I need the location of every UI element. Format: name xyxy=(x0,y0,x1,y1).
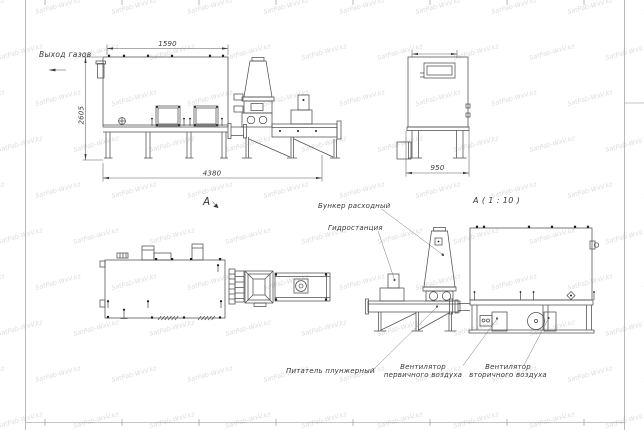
dimensions xyxy=(49,45,470,209)
watermark-text: SatPab-WxV.kz xyxy=(224,42,272,62)
watermark-text: SatPab-WxV.kz xyxy=(566,88,614,108)
watermark-text: SatPab-WxV.kz xyxy=(566,180,614,200)
watermark-text: SatPab-WxV.kz xyxy=(376,226,424,246)
watermark-text: SatPab-WxV.kz xyxy=(452,410,500,430)
watermark-text: SatPab-WxV.kz xyxy=(0,0,6,16)
hopper-tower-detail xyxy=(423,228,456,302)
watermark-text: SatPab-WxV.kz xyxy=(528,42,576,62)
watermark-text: SatPab-WxV.kz xyxy=(0,272,6,292)
watermark-text: SatPab-WxV.kz xyxy=(414,88,462,108)
callout-hydraulic: Гидростанция xyxy=(328,224,383,232)
watermark-text: SatPab-WxV.kz xyxy=(0,364,6,384)
watermark-text: SatPab-WxV.kz xyxy=(224,226,272,246)
watermark-text: SatPab-WxV.kz xyxy=(0,88,6,108)
plunger-feeder-side xyxy=(242,113,341,139)
watermark-layer: SatPab-WxV.kzSatPab-WxV.kzSatPab-WxV.kzS… xyxy=(0,0,644,430)
watermark-text: SatPab-WxV.kz xyxy=(528,134,576,154)
dim-4380-text: 4380 xyxy=(203,170,222,178)
watermark-text: SatPab-WxV.kz xyxy=(0,318,44,338)
watermark-text: SatPab-WxV.kz xyxy=(34,364,82,384)
top-opening xyxy=(420,63,455,78)
watermark-text: SatPab-WxV.kz xyxy=(338,88,386,108)
gas-outlet-arrow xyxy=(49,69,67,72)
watermark-text: SatPab-WxV.kz xyxy=(452,134,500,154)
drawing-sheet: SatPab-WxV.kzSatPab-WxV.kzSatPab-WxV.kzS… xyxy=(0,0,644,430)
watermark-text: SatPab-WxV.kz xyxy=(0,42,44,62)
watermark-text: SatPab-WxV.kz xyxy=(490,272,538,292)
watermark-text: SatPab-WxV.kz xyxy=(110,88,158,108)
technical-drawing: SatPab-WxV.kzSatPab-WxV.kzSatPab-WxV.kzS… xyxy=(0,0,644,430)
foundation-bolts xyxy=(475,292,595,301)
watermark-text: SatPab-WxV.kz xyxy=(110,272,158,292)
plan-chimney-stubs xyxy=(117,244,203,260)
watermark-text: SatPab-WxV.kz xyxy=(0,134,44,154)
watermark-text: SatPab-WxV.kz xyxy=(528,318,576,338)
watermark-text: SatPab-WxV.kz xyxy=(0,410,44,430)
gas-outlet-label: Выход газов xyxy=(39,50,92,59)
watermark-text: SatPab-WxV.kz xyxy=(72,134,120,154)
watermark-text: SatPab-WxV.kz xyxy=(566,364,614,384)
watermark-text: SatPab-WxV.kz xyxy=(414,0,462,16)
plan-flange-bellows xyxy=(229,269,244,304)
callout-primary-fan-line1: Вентилятор xyxy=(400,363,446,371)
view-a-arrow xyxy=(213,202,219,209)
watermark-text: SatPab-WxV.kz xyxy=(0,226,44,246)
furnace-body xyxy=(103,57,228,127)
sheet-frame xyxy=(26,0,644,430)
watermark-text: SatPab-WxV.kz xyxy=(376,410,424,430)
watermark-text: SatPab-WxV.kz xyxy=(224,410,272,430)
watermark-text: SatPab-WxV.kz xyxy=(262,88,310,108)
lifting-lug xyxy=(590,241,599,249)
detail-view xyxy=(366,228,599,334)
view-a-label: А xyxy=(202,196,210,208)
watermark-text: SatPab-WxV.kz xyxy=(148,226,196,246)
watermark-text: SatPab-WxV.kz xyxy=(34,0,82,16)
dim-1590-text: 1590 xyxy=(158,40,177,48)
callout-feeder: Питатель плунжерный xyxy=(286,367,375,375)
watermark-text: SatPab-WxV.kz xyxy=(376,42,424,62)
leader-feeder xyxy=(373,305,438,370)
watermark-text: SatPab-WxV.kz xyxy=(566,272,614,292)
watermark-text: SatPab-WxV.kz xyxy=(186,364,234,384)
watermark-text: SatPab-WxV.kz xyxy=(72,410,120,430)
callout-secondary-fan-line1: Вентилятор xyxy=(485,363,531,371)
watermark-text: SatPab-WxV.kz xyxy=(72,318,120,338)
dim-2605-text: 2605 xyxy=(78,106,86,125)
watermark-text: SatPab-WxV.kz xyxy=(490,0,538,16)
side-view xyxy=(96,57,341,158)
watermark-text: SatPab-WxV.kz xyxy=(72,226,120,246)
watermark-text: SatPab-WxV.kz xyxy=(34,180,82,200)
watermark-text: SatPab-WxV.kz xyxy=(566,0,614,16)
watermark-text: SatPab-WxV.kz xyxy=(0,180,6,200)
watermark-text: SatPab-WxV.kz xyxy=(414,272,462,292)
callout-primary-fan-line2: первичного воздуха xyxy=(384,371,462,379)
watermark-text: SatPab-WxV.kz xyxy=(338,272,386,292)
watermark-text: SatPab-WxV.kz xyxy=(148,134,196,154)
watermark-text: SatPab-WxV.kz xyxy=(262,0,310,16)
watermark-text: SatPab-WxV.kz xyxy=(262,272,310,292)
connecting-duct xyxy=(228,124,247,139)
watermark-text: SatPab-WxV.kz xyxy=(34,88,82,108)
watermark-text: SatPab-WxV.kz xyxy=(452,226,500,246)
watermark-text: SatPab-WxV.kz xyxy=(300,42,348,62)
callout-hopper: Бункер расходный xyxy=(318,202,391,210)
watermark-text: SatPab-WxV.kz xyxy=(186,88,234,108)
detail-view-title: А ( 1 : 10 ) xyxy=(472,196,520,205)
watermark-text: SatPab-WxV.kz xyxy=(528,226,576,246)
watermark-text: SatPab-WxV.kz xyxy=(414,180,462,200)
watermark-text: SatPab-WxV.kz xyxy=(490,88,538,108)
watermark-text: SatPab-WxV.kz xyxy=(300,318,348,338)
watermark-text: SatPab-WxV.kz xyxy=(262,180,310,200)
watermark-text: SatPab-WxV.kz xyxy=(148,318,196,338)
watermark-text: SatPab-WxV.kz xyxy=(110,364,158,384)
watermark-text: SatPab-WxV.kz xyxy=(528,410,576,430)
watermark-text: SatPab-WxV.kz xyxy=(376,134,424,154)
watermark-text: SatPab-WxV.kz xyxy=(34,272,82,292)
callout-secondary-fan-line2: вторичного воздуха xyxy=(469,371,547,379)
watermark-text: SatPab-WxV.kz xyxy=(452,318,500,338)
watermark-text: SatPab-WxV.kz xyxy=(452,42,500,62)
watermark-text: SatPab-WxV.kz xyxy=(186,180,234,200)
watermark-text: SatPab-WxV.kz xyxy=(338,180,386,200)
watermark-text: SatPab-WxV.kz xyxy=(338,0,386,16)
watermark-text: SatPab-WxV.kz xyxy=(300,410,348,430)
watermark-text: SatPab-WxV.kz xyxy=(148,410,196,430)
watermark-text: SatPab-WxV.kz xyxy=(110,0,158,16)
dim-950-text: 950 xyxy=(431,164,445,172)
watermark-text: SatPab-WxV.kz xyxy=(186,272,234,292)
plan-position-pins xyxy=(108,266,221,319)
sight-glass-symbol xyxy=(118,117,126,125)
watermark-text: SatPab-WxV.kz xyxy=(186,0,234,16)
dimension-4380 xyxy=(103,155,322,182)
inspection-hatches xyxy=(152,106,222,126)
watermark-text: SatPab-WxV.kz xyxy=(224,318,272,338)
leader-hopper xyxy=(382,209,444,256)
watermark-text: SatPab-WxV.kz xyxy=(110,180,158,200)
